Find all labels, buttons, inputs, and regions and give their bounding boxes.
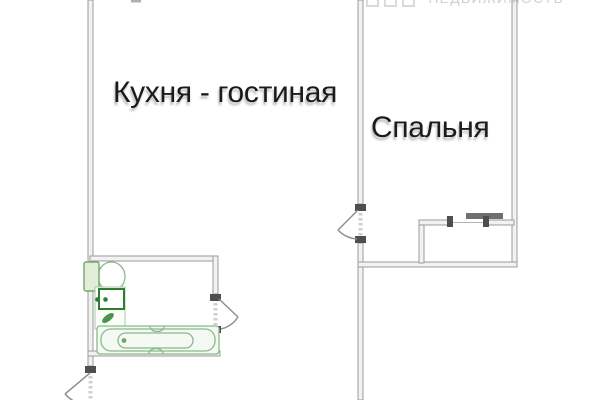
sink-tap-dot-right [103,297,108,302]
room-label-kitchen-living: Кухня - гостиная [113,76,337,110]
watermark-brand: НЕДВИЖИМОСТЬ [428,0,564,5]
watermark-square-icon [384,0,397,7]
wardrobe-top-wall-right [486,220,514,225]
sink-icon [95,287,125,329]
watermark: НЕДВИЖИМОСТЬ [366,0,564,7]
bedroom-door-swing-icon [338,204,366,243]
wardrobe-jamb-left [447,216,453,227]
bathtub-icon [97,326,219,354]
bathtub-outer [97,326,219,354]
bedroom-door-leaf [338,210,358,230]
hall-door-leaf [65,373,90,394]
wall-clipped-tick [131,0,141,3]
sink-basin [99,289,124,309]
bedroom-door-arc [338,230,357,239]
bedroom-door-jamb-top [355,204,366,211]
bathtub-drain [122,338,127,343]
floorplan-drawing [0,0,600,400]
wall-bathroom-top [90,256,217,261]
room-label-bedroom: Спальня [371,111,489,145]
wardrobe-jamb-right [483,216,489,227]
sliding-wardrobe-icon [419,213,514,263]
wardrobe-left-wall [419,221,424,263]
watermark-square-icon [366,0,379,7]
wall-left-outer [88,0,93,366]
wall-bedroom-bottom [358,262,517,267]
sink-tap-dot-left [95,297,100,302]
bathroom-door-leaf [219,299,238,317]
hall-door-swing-icon [65,366,96,400]
bathroom-door-arc [221,317,238,329]
hall-door-arc [65,394,87,400]
watermark-square-icon [402,0,415,7]
floorplan-page: Кухня - гостиная Спальня НЕДВИЖИМОСТЬ [0,0,600,400]
wardrobe-top-wall-left [419,220,451,225]
wall-divider-upper [358,0,363,204]
wall-bathroom-right-upper [213,256,218,294]
hall-door-jamb [85,366,96,373]
